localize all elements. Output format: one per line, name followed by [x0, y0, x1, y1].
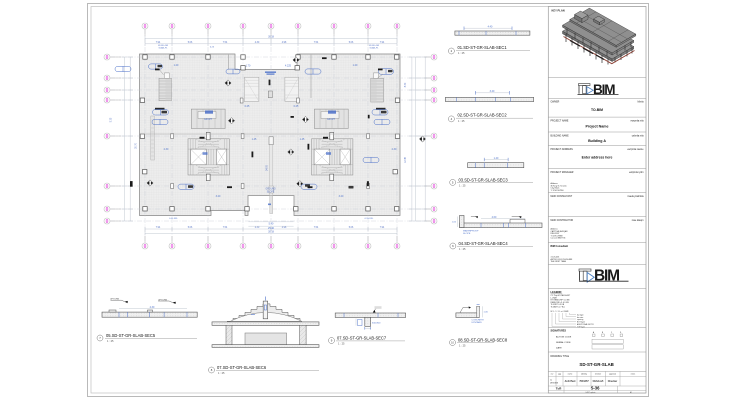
- svg-text:30.18: 30.18: [268, 36, 274, 38]
- svg-text:BIM Consultant: BIM Consultant: [551, 245, 569, 248]
- svg-text:PROJECT NAME: PROJECT NAME: [551, 120, 569, 123]
- svg-text:4.30: 4.30: [255, 227, 260, 229]
- svg-text:12.45: 12.45: [405, 156, 407, 162]
- svg-text:2.30: 2.30: [392, 148, 397, 151]
- svg-text:notes: notes: [631, 373, 635, 376]
- svg-text:BIM: BIM: [594, 267, 619, 284]
- svg-text:4.30: 4.30: [150, 306, 155, 309]
- svg-text:5.06: 5.06: [188, 227, 193, 229]
- svg-text:A1: A1: [630, 391, 632, 394]
- svg-text:3.20: 3.20: [216, 195, 221, 198]
- svg-text:7.54: 7.54: [314, 227, 319, 229]
- svg-text:7.94: 7.94: [380, 227, 385, 229]
- svg-text:1 : 25: 1 : 25: [218, 371, 225, 375]
- svg-text:03.SD-ST-GR-SLAB-SEC3: 03.SD-ST-GR-SLAB-SEC3: [459, 177, 509, 182]
- svg-text:TOP layer: TOP layer: [577, 326, 585, 328]
- svg-text:PROJECT MANAGER: PROJECT MANAGER: [551, 171, 574, 174]
- svg-text:5.06: 5.06: [349, 227, 354, 229]
- svg-text:approval: approval: [609, 374, 616, 376]
- svg-text:SERIAL CODE: SERIAL CODE: [556, 341, 571, 344]
- svg-text:TO-BIM: TO-BIM: [591, 108, 603, 112]
- svg-text:BUILDING NAME: BUILDING NAME: [551, 134, 570, 137]
- svg-text:S-36: S-36: [591, 386, 601, 391]
- svg-text:7.94: 7.94: [156, 227, 161, 229]
- svg-text:SIGNATURES: SIGNATURES: [551, 330, 567, 333]
- svg-text:identity: identity: [581, 373, 587, 376]
- svg-text:7001257: 7001257: [579, 380, 589, 383]
- svg-text:TsR: TsR: [556, 386, 562, 390]
- svg-text:2.30: 2.30: [164, 148, 169, 151]
- svg-text:4.60: 4.60: [492, 216, 497, 219]
- svg-text:MAIN CONTRACTOR: MAIN CONTRACTOR: [551, 219, 574, 222]
- svg-text:CONCRETE: CONCRETE: [472, 320, 485, 322]
- svg-text:SLOPE: SLOPE: [267, 191, 275, 193]
- svg-text:UPTURN: UPTURN: [158, 299, 168, 301]
- svg-text:1 : 25: 1 : 25: [459, 343, 466, 347]
- svg-text:SD-ST-GR-SLAB: SD-ST-GR-SLAB: [579, 362, 613, 367]
- svg-text:1.70: 1.70: [246, 65, 251, 68]
- svg-text:4.40: 4.40: [488, 26, 493, 29]
- svg-text:WATERPROOF: WATERPROOF: [463, 230, 479, 233]
- svg-text:TLDART at 7 Bar: TLDART at 7 Bar: [551, 306, 566, 309]
- svg-text:kllmla: kllmla: [638, 102, 645, 104]
- svg-text:ewrpmla nawne: ewrpmla nawne: [627, 148, 644, 151]
- svg-text:T: 1234 567890: T: 1234 567890: [551, 190, 564, 192]
- svg-text:1 : 25: 1 : 25: [458, 51, 465, 55]
- svg-text:UPTURN: UPTURN: [110, 299, 120, 301]
- svg-text:Building A: Building A: [588, 139, 606, 143]
- svg-text:4.98: 4.98: [282, 42, 287, 44]
- svg-text:5.06: 5.06: [349, 42, 354, 44]
- svg-text:7.54: 7.54: [314, 42, 319, 44]
- svg-text:08.SD-ST-GR-SLAB-SEC8: 08.SD-ST-GR-SLAB-SEC8: [458, 337, 508, 342]
- svg-text:THE FIRST TEAM: THE FIRST TEAM: [551, 260, 567, 263]
- svg-text:no: no: [550, 380, 552, 382]
- svg-text:5.06: 5.06: [188, 42, 193, 44]
- svg-text:LEGEND:: LEGEND:: [551, 290, 563, 294]
- svg-text:1.40: 1.40: [494, 157, 499, 160]
- svg-text:7.94: 7.94: [156, 42, 161, 44]
- svg-text:SLOPE: SLOPE: [463, 233, 471, 235]
- svg-text:24.05: 24.05: [267, 164, 269, 170]
- svg-text:07.SD-ST-GR-SLAB-SEC7: 07.SD-ST-GR-SLAB-SEC7: [337, 336, 387, 341]
- svg-text:ACTION CODE: ACTION CODE: [556, 336, 572, 339]
- svg-text:7.54: 7.54: [223, 42, 228, 44]
- svg-text:05.SD-ST-GR-SLAB-SEC5: 05.SD-ST-GR-SLAB-SEC5: [106, 333, 156, 338]
- svg-text:5.35: 5.35: [111, 117, 113, 122]
- svg-text:Project Name: Project Name: [586, 125, 609, 129]
- svg-text:0.15 FFL: 0.15 FFL: [169, 218, 179, 220]
- svg-text:W # # # ## at / DWF: W # # # ## at / DWF: [551, 310, 570, 313]
- svg-text:25.40: 25.40: [268, 227, 275, 230]
- svg-text:30.18: 30.18: [268, 232, 274, 234]
- svg-text:04.SD-ST-GR-SLAB-SEC4: 04.SD-ST-GR-SLAB-SEC4: [459, 241, 509, 246]
- svg-text:ArchiText: ArchiText: [565, 380, 576, 383]
- svg-text:ynbmla mla: ynbmla mla: [632, 135, 644, 137]
- svg-text:3.20: 3.20: [339, 195, 344, 198]
- svg-text:4.30: 4.30: [255, 42, 260, 44]
- svg-text:OWNER: OWNER: [551, 102, 560, 104]
- svg-text:5.40: 5.40: [269, 222, 274, 225]
- svg-text:PROJECT ADDRESS: PROJECT ADDRESS: [551, 148, 574, 151]
- svg-text:4.98: 4.98: [282, 227, 287, 229]
- svg-text:KEY PLAN: KEY PLAN: [552, 9, 565, 13]
- svg-text:1.05: 1.05: [452, 222, 457, 224]
- svg-text:1.20: 1.20: [353, 64, 358, 67]
- svg-text:1 : 25: 1 : 25: [338, 342, 345, 346]
- svg-text:02.SD-ST-GR-SLAB-SEC2: 02.SD-ST-GR-SLAB-SEC2: [458, 113, 508, 118]
- svg-text:0.25: 0.25: [210, 47, 215, 49]
- svg-text:DESIGNS: DESIGNS: [550, 382, 559, 384]
- svg-text:1.45: 1.45: [252, 138, 257, 141]
- svg-text:Checker: Checker: [608, 380, 618, 383]
- svg-text:app: app: [558, 374, 561, 376]
- svg-text:3.40: 3.40: [490, 90, 495, 93]
- svg-text:SLAB-PL: SLAB-PL: [159, 47, 169, 50]
- svg-text:1 : 25: 1 : 25: [459, 247, 466, 251]
- svg-text:7.54: 7.54: [223, 227, 228, 229]
- svg-text:8.30: 8.30: [405, 82, 407, 87]
- svg-text:UPSTAND: UPSTAND: [472, 321, 483, 324]
- svg-text:1.05: 1.05: [484, 312, 489, 314]
- svg-text:1.20: 1.20: [174, 64, 179, 67]
- svg-text:7.94: 7.94: [380, 42, 385, 44]
- svg-text:1.45: 1.45: [300, 138, 305, 141]
- svg-text:01.SD-ST-GR-SLAB-SEC1: 01.SD-ST-GR-SLAB-SEC1: [458, 45, 508, 50]
- svg-text:1 : 25: 1 : 25: [458, 119, 465, 123]
- svg-text:GR.WT: GR.WT: [204, 118, 213, 121]
- svg-text:0.25: 0.25: [245, 105, 250, 108]
- svg-text:Enter address here: Enter address here: [582, 156, 613, 160]
- svg-text:1 : 25: 1 : 25: [459, 183, 466, 187]
- svg-text:LAST update: LAST update: [586, 391, 596, 394]
- svg-text:Co.Cont 8847736: Co.Cont 8847736: [551, 237, 566, 240]
- svg-text:GROUND: GROUND: [265, 189, 276, 191]
- svg-text:checker: checker: [595, 374, 602, 376]
- svg-text:4.225: 4.225: [285, 65, 292, 68]
- svg-text:DRAWING TITLE: DRAWING TITLE: [551, 355, 570, 358]
- svg-text:MAIN CONSULTANT: MAIN CONSULTANT: [551, 195, 573, 198]
- svg-text:07.SD-ST-GR-SLAB-SEC6: 07.SD-ST-GR-SLAB-SEC6: [217, 365, 267, 370]
- svg-text:maela yrashtsla: maela yrashtsla: [627, 195, 644, 198]
- svg-text:SLAB-PL: SLAB-PL: [370, 47, 380, 50]
- svg-text:0.25: 0.25: [294, 105, 299, 108]
- svg-text:0.15 FFL: 0.15 FFL: [365, 218, 375, 220]
- svg-text:600x900: 600x900: [372, 323, 381, 325]
- svg-text:name: name: [568, 374, 573, 376]
- svg-text:ewrpmla rydm: ewrpmla rydm: [629, 171, 644, 174]
- svg-text:1 : 25: 1 : 25: [107, 339, 114, 343]
- svg-text:30.70: 30.70: [136, 142, 138, 148]
- svg-text:ewrpmla mla: ewrpmla mla: [630, 120, 644, 123]
- svg-text:GR.WT: GR.WT: [327, 118, 336, 121]
- svg-text:mae lwaqm: mae lwaqm: [632, 220, 644, 222]
- svg-text:rev: rev: [551, 374, 554, 376]
- svg-text:DATE: DATE: [556, 347, 562, 350]
- svg-text:002x1xx5: 002x1xx5: [593, 380, 604, 383]
